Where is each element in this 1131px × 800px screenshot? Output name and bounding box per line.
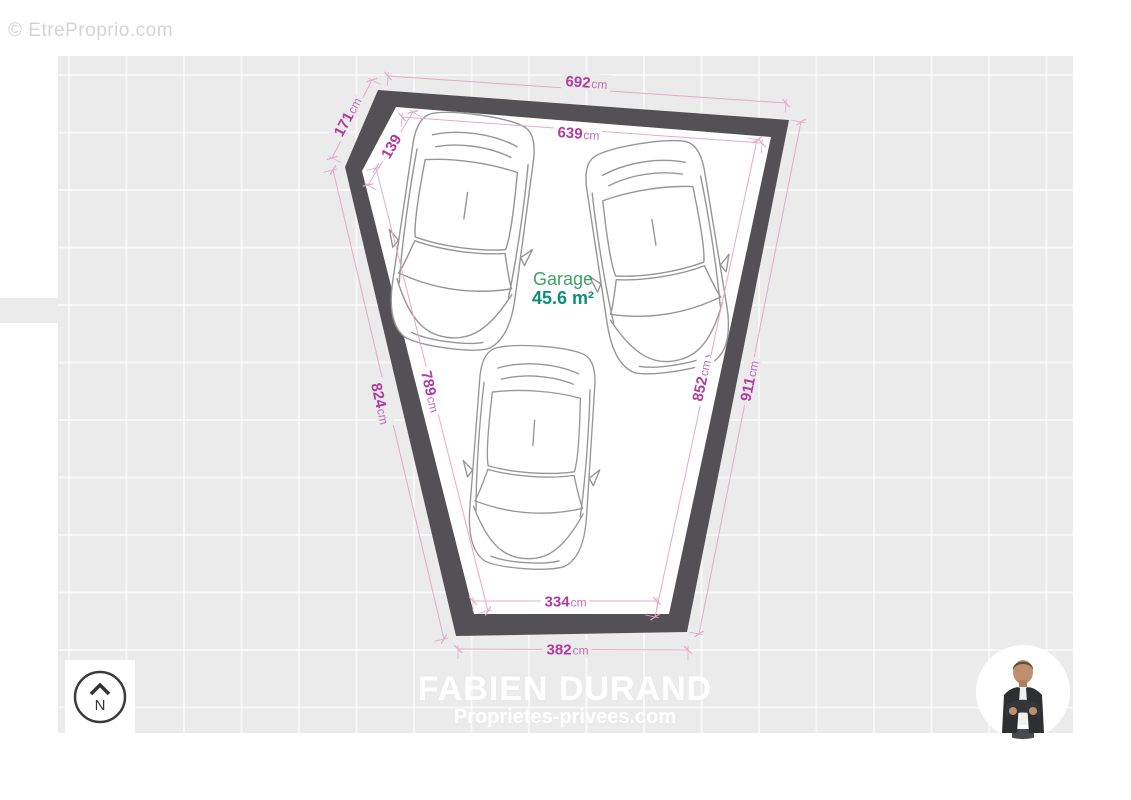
dimension-label: 824cm bbox=[367, 381, 393, 426]
compass-icon: N bbox=[71, 668, 129, 726]
dimension-bottom-outer: 382cm bbox=[454, 641, 692, 660]
agent-name: FABIEN DURAND bbox=[418, 670, 712, 709]
compass-north-label: N bbox=[95, 697, 106, 714]
dimension-label: 382cm bbox=[547, 642, 589, 659]
agent-photo bbox=[976, 645, 1070, 739]
dimension-label: 334cm bbox=[545, 594, 587, 611]
room-area: 45.6 m² bbox=[532, 288, 594, 308]
compass: N bbox=[65, 660, 135, 733]
room-label: Garage bbox=[533, 269, 593, 289]
dimension-label: 911cm bbox=[737, 359, 762, 403]
agency-name: Proprietes-privees.com bbox=[454, 706, 676, 729]
